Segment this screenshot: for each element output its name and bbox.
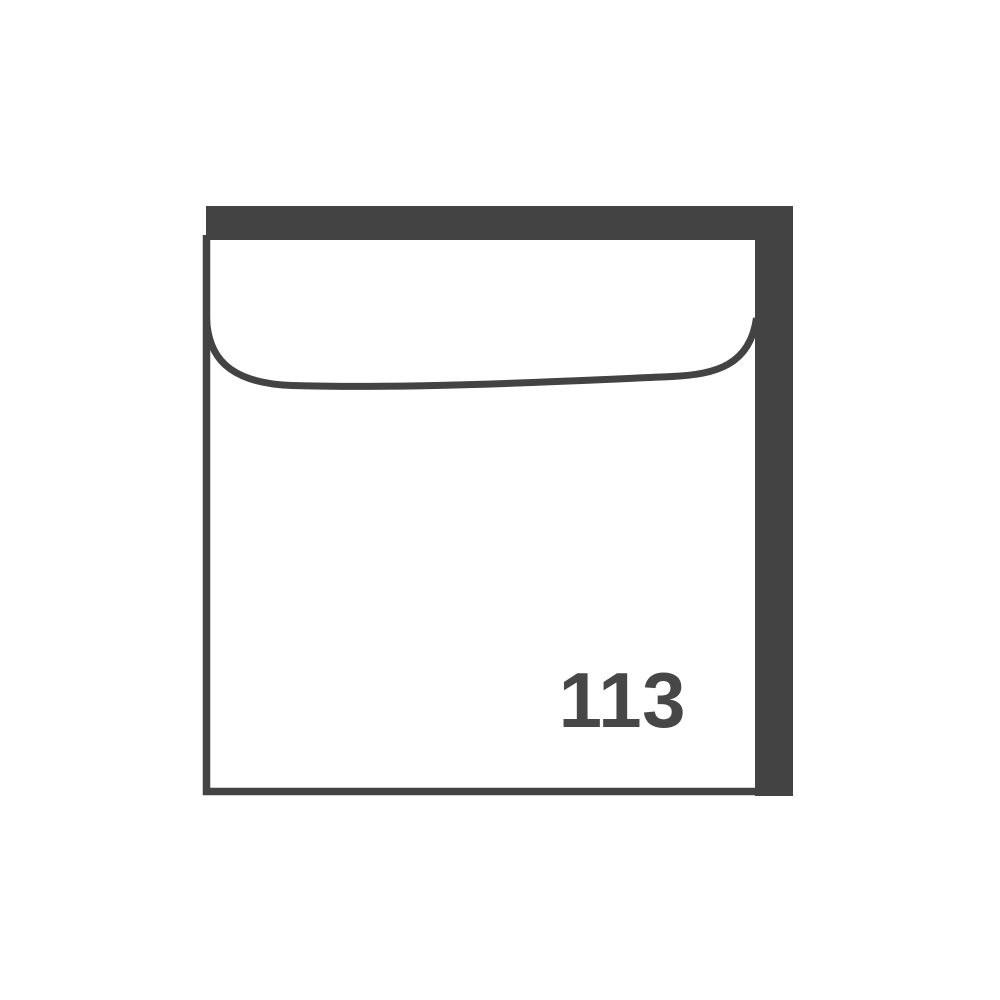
- envelope-side-bar: [755, 206, 793, 796]
- envelope-top-bar: [206, 206, 793, 240]
- envelope-number: 113: [559, 656, 686, 744]
- canvas: 113: [0, 0, 1000, 1000]
- envelope-body-outline: [207, 235, 790, 792]
- envelope-icon: 113: [0, 0, 1000, 1000]
- envelope-flap-curve: [207, 318, 757, 386]
